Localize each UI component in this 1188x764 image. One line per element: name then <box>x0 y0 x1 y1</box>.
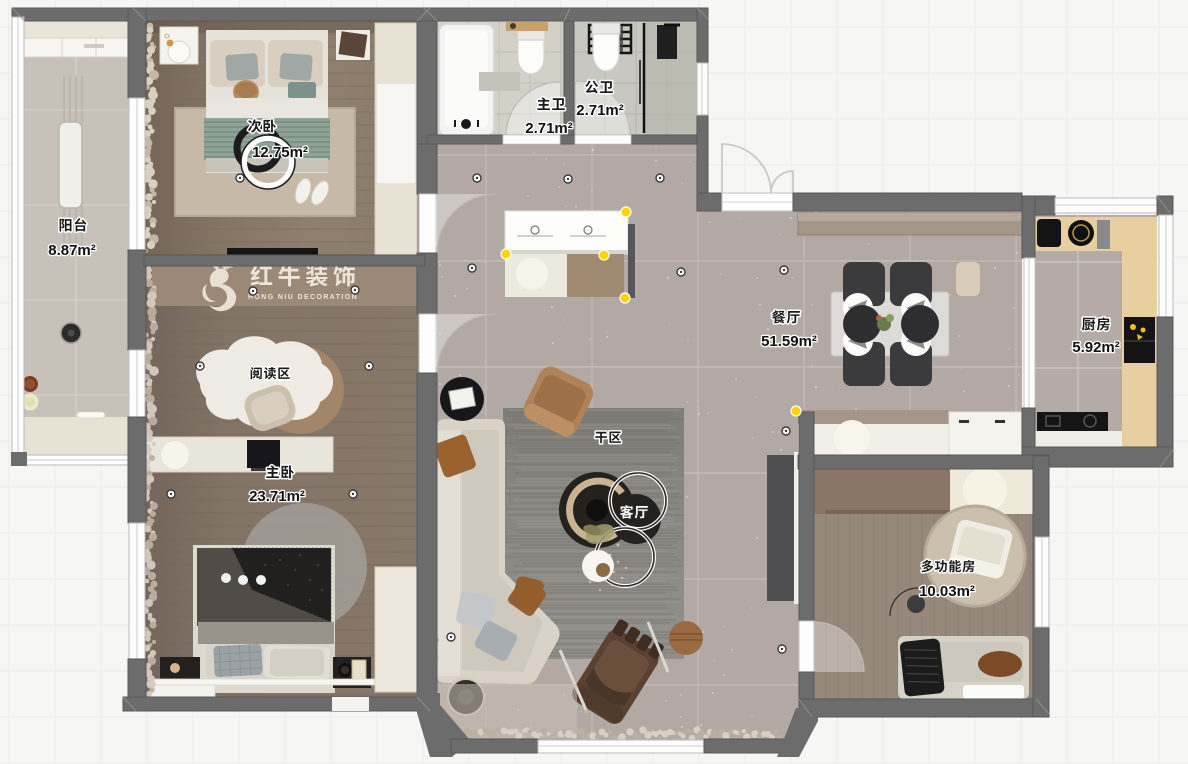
svg-text:2.71m²: 2.71m² <box>525 120 573 137</box>
svg-text:10.03m²: 10.03m² <box>919 583 975 600</box>
svg-text:2.71m²: 2.71m² <box>576 102 624 119</box>
svg-text:51.59m²: 51.59m² <box>761 333 817 350</box>
svg-text:5.92m²: 5.92m² <box>1072 339 1120 356</box>
svg-text:8.87m²: 8.87m² <box>48 242 96 259</box>
svg-text:12.75m²: 12.75m² <box>252 144 308 161</box>
svg-text:23.71m²: 23.71m² <box>249 488 305 505</box>
svg-text:HONG NIU DECORATION: HONG NIU DECORATION <box>248 294 358 301</box>
